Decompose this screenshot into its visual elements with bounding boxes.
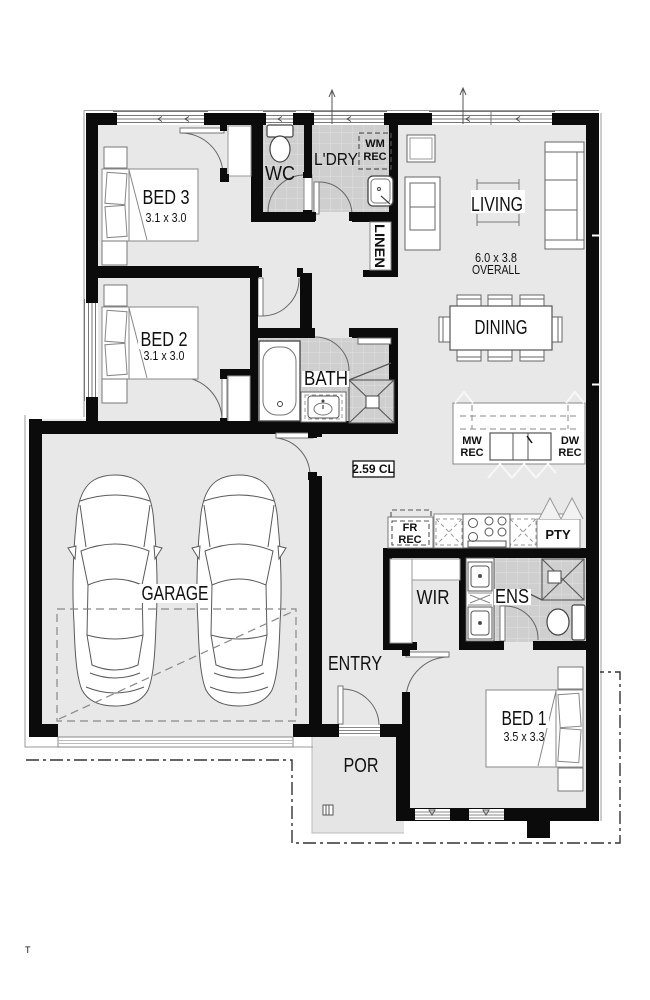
svg-text:L'DRY: L'DRY	[314, 149, 358, 169]
svg-text:DW: DW	[561, 435, 580, 447]
svg-text:REC: REC	[363, 151, 386, 163]
svg-text:FR: FR	[403, 522, 418, 534]
svg-text:OVERALL: OVERALL	[472, 262, 520, 277]
svg-text:LINEN: LINEN	[372, 224, 388, 268]
svg-text:DINING: DINING	[475, 317, 528, 339]
svg-text:GARAGE: GARAGE	[142, 583, 209, 605]
svg-text:WIR: WIR	[417, 587, 450, 609]
svg-text:LIVING: LIVING	[471, 194, 523, 216]
svg-text:BED 1: BED 1	[502, 708, 547, 730]
svg-text:BED 3: BED 3	[143, 187, 190, 209]
svg-text:WM: WM	[365, 138, 385, 150]
svg-text:BATH: BATH	[304, 368, 348, 390]
svg-text:3.5 x 3.3: 3.5 x 3.3	[504, 729, 545, 744]
svg-text:3.1 x 3.0: 3.1 x 3.0	[146, 210, 187, 225]
svg-text:ENS: ENS	[495, 586, 529, 608]
svg-text:PTY: PTY	[545, 527, 571, 542]
svg-text:REC: REC	[398, 534, 421, 546]
svg-text:2.59 CL: 2.59 CL	[352, 462, 395, 476]
svg-text:MW: MW	[462, 435, 482, 447]
svg-text:WC: WC	[265, 163, 295, 185]
svg-text:REC: REC	[460, 447, 483, 459]
svg-text:POR: POR	[344, 755, 379, 777]
svg-text:T: T	[25, 945, 31, 955]
svg-text:3.1 x 3.0: 3.1 x 3.0	[144, 348, 185, 363]
svg-text:REC: REC	[558, 447, 581, 459]
svg-text:ENTRY: ENTRY	[328, 653, 382, 675]
